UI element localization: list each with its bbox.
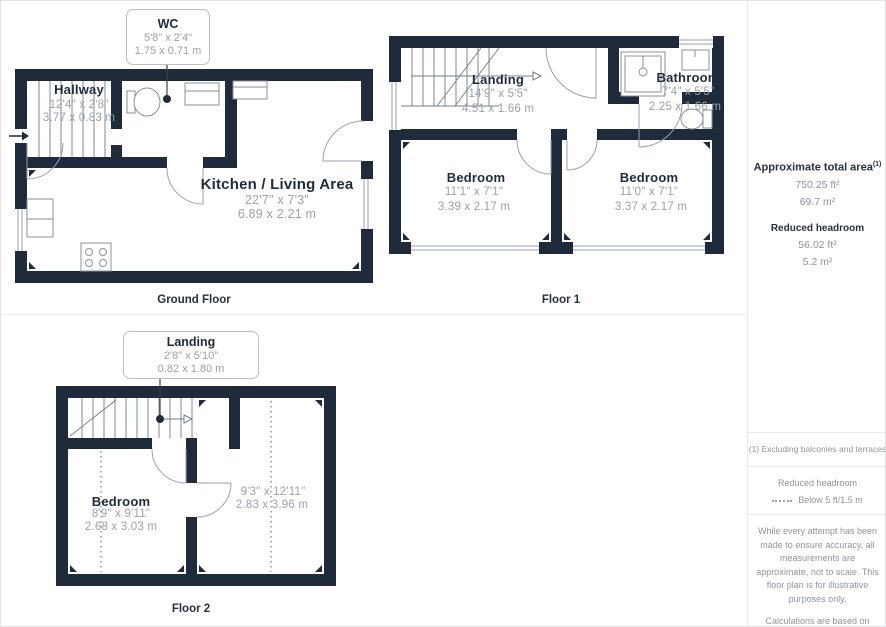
landing-callout-name: Landing	[167, 335, 216, 349]
landing-callout-imperial: 2'8" x 5'10"	[164, 350, 218, 362]
sidebar-divider-2	[748, 466, 886, 467]
sidebar-divider-3	[748, 514, 886, 515]
bedroom1-imperial: 11'1" x 7'1"	[445, 186, 503, 198]
sidebar-divider-1	[748, 432, 886, 433]
landing-callout-metric: 0.82 x 1.80 m	[158, 363, 225, 375]
bedroom-f2-imperial: 8'9" x 9'11"	[92, 508, 150, 520]
bathroom-imperial: 7'4" x 5'5"	[662, 86, 714, 98]
landing-f1-imperial: 14'9" x 5'5"	[468, 88, 527, 100]
info-sidebar: Approximate total area(1) 750.25 ft² 69.…	[747, 1, 886, 627]
headroom-legend-row: Below 5 ft/1.5 m	[748, 495, 886, 505]
disclaimer-block: While every attempt has been made to ens…	[756, 525, 879, 627]
floor1-walls	[389, 36, 724, 254]
floor2-stairs-icon	[70, 398, 192, 438]
reduced-headroom-metric: 5.2 m²	[748, 256, 886, 268]
kitchen-living-name: Kitchen / Living Area	[201, 176, 354, 193]
bathroom-name: Bathroom	[657, 70, 720, 85]
room-f2-metric: 2.83 x 3.96 m	[236, 499, 308, 511]
total-area-footnote-marker: (1)	[873, 161, 882, 168]
landing-f1-metric: 4.51 x 1.66 m	[462, 103, 534, 115]
wc-callout-name: WC	[158, 17, 179, 31]
total-area-metric: 69.7 m²	[748, 196, 886, 208]
reduced-headroom-title: Reduced headroom	[748, 223, 886, 234]
floor1-label: Floor 1	[542, 294, 580, 306]
bedroom2-name: Bedroom	[620, 170, 678, 185]
floorplan-page: WC 5'8" x 2'4" 1.75 x 0.71 m Hallway 12'…	[0, 0, 886, 627]
total-area-block: Approximate total area(1) 750.25 ft² 69.…	[748, 161, 886, 268]
toilet-icon	[127, 88, 160, 116]
floor1-plan	[387, 34, 727, 266]
bathroom-sink-icon	[682, 50, 709, 70]
total-area-title: Approximate total area(1)	[748, 161, 886, 174]
room-f2-imperial: 9'3" x 12'11"	[241, 486, 306, 498]
hob-icon	[81, 243, 111, 271]
sink-icon	[185, 83, 219, 105]
entry-arrow-icon	[9, 132, 29, 141]
bathroom-metric: 2.25 x 1.66 m	[649, 101, 721, 113]
landing-callout: Landing 2'8" x 5'10" 0.82 x 1.80 m	[123, 331, 259, 379]
wc-callout-imperial: 5'8" x 2'4"	[144, 32, 192, 44]
kitchen-living-metric: 6.89 x 2.21 m	[238, 207, 316, 221]
landing-leader	[156, 379, 164, 423]
ground-floor-label: Ground Floor	[157, 294, 230, 306]
footnote-text: (1) Excluding balconies and terraces	[748, 444, 886, 454]
wc-callout: WC 5'8" x 2'4" 1.75 x 0.71 m	[126, 9, 210, 65]
bedroom1-name: Bedroom	[447, 170, 505, 185]
disclaimer-text-2: Calculations are based on RICS IPMS 3C s…	[756, 615, 879, 627]
dotted-line-sample	[772, 500, 792, 502]
hallway-name: Hallway	[54, 82, 104, 97]
landing-f1-name: Landing	[472, 72, 524, 87]
floor2-stairs-arrow-icon	[160, 415, 192, 423]
headroom-legend-label: Below 5 ft/1.5 m	[798, 495, 863, 505]
disclaimer-text-1: While every attempt has been made to ens…	[756, 525, 879, 606]
bedroom2-imperial: 11'0" x 7'1"	[620, 186, 678, 198]
floor2-label: Floor 2	[172, 603, 210, 615]
hallway-imperial: 12'4" x 2'8"	[49, 99, 108, 111]
counter-icon	[27, 199, 53, 237]
headroom-legend-title: Reduced headroom	[748, 478, 886, 488]
bedroom2-metric: 3.37 x 2.17 m	[615, 201, 687, 213]
bedroom-f2-metric: 2.68 x 3.03 m	[85, 521, 157, 533]
boiler-icon	[233, 81, 267, 99]
main-horizontal-divider	[1, 314, 747, 315]
bedroom1-metric: 3.39 x 2.17 m	[438, 201, 510, 213]
hallway-metric: 3.77 x 0.83 m	[43, 112, 115, 124]
total-area-imperial: 750.25 ft²	[748, 179, 886, 191]
floor2-plan	[52, 376, 340, 590]
kitchen-living-imperial: 22'7" x 7'3"	[245, 193, 309, 207]
headroom-legend: Reduced headroom Below 5 ft/1.5 m	[748, 478, 886, 505]
wc-callout-metric: 1.75 x 0.71 m	[135, 45, 202, 57]
reduced-headroom-imperial: 56.02 ft²	[748, 239, 886, 251]
bedroom-f2-name: Bedroom	[92, 494, 150, 509]
